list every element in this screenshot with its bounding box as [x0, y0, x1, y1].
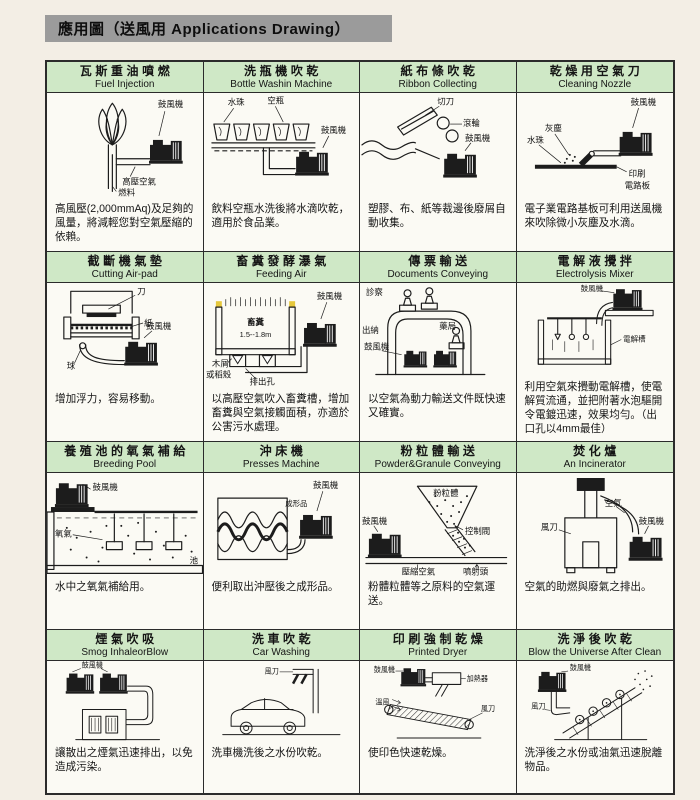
- cell-header: 紙布條吹乾 Ribbon Collecting: [360, 62, 516, 93]
- diagram-label: 壓縮空氣: [402, 567, 436, 577]
- cell-blow-after-clean: 洗淨後吹乾 Blow the Universe After Clean 鼓風機 …: [517, 630, 674, 795]
- blower-icon: [443, 154, 477, 178]
- diagram-label: 空氣: [604, 498, 621, 508]
- diagram-documents-conveying: 診察 出納 藥局 鼓風機: [360, 283, 516, 391]
- cell-description: 以空氣為動力輸送文件既快速又確實。: [360, 391, 516, 441]
- blower-icon: [149, 140, 183, 164]
- cell-description: 利用空氣來攪動電解槽，使電解質流通，並把附著水泡驅開令電鍍迅速，效果均勻。（出口…: [517, 379, 674, 441]
- diagram-electrolysis-mixer: 鼓風機 電解槽: [517, 283, 674, 378]
- cell-title-en: Bottle Washin Machine: [204, 79, 360, 91]
- cell-header: 截斷機氣墊 Cutting Air-pad: [47, 252, 203, 283]
- diagram-powder-granule: 粉粒體 控制閥 鼓風機 壓縮空氣: [360, 473, 516, 579]
- cell-bottle-washing: 洗瓶機吹乾 Bottle Washin Machine: [204, 62, 361, 252]
- cell-title-zh: 傳票輸送: [360, 255, 517, 269]
- cell-title-en: Powder&Granule Conveying: [360, 459, 516, 471]
- blower-icon: [66, 674, 94, 694]
- cell-description: 塑膠、布、紙等裁邊後廢屑自動收集。: [360, 201, 516, 251]
- diagram-cutting-airpad: 刀 紙 球 鼓風機: [47, 283, 203, 391]
- cell-breeding-pool: 養殖池的氧氣補給 Breeding Pool 鼓風機: [47, 442, 204, 630]
- cell-header: 粉粒體輸送 Powder&Granule Conveying: [360, 442, 516, 473]
- cell-description: 以高壓空氣吹入畜糞槽，增加畜糞與空氣接觸面積，亦適於公害污水處理。: [204, 391, 360, 441]
- diagram-label: 風刀: [531, 703, 545, 711]
- cell-printed-dryer: 印刷強制乾燥 Printed Dryer 鼓風機 加熱器 溫風: [360, 630, 517, 795]
- cell-title-zh: 洗瓶機吹乾: [204, 65, 361, 79]
- diagram-label: 風刀: [481, 706, 495, 714]
- diagram-label: 鼓風機: [312, 481, 338, 491]
- diagram-label: 電路板: [624, 181, 650, 191]
- blower-icon: [433, 351, 457, 368]
- diagram-label: 出納: [362, 325, 379, 335]
- blower-icon: [99, 674, 127, 694]
- diagram-ribbon-collecting: 切刀 滾輪 鼓風機: [360, 93, 516, 201]
- diagram-label: 鼓風機: [374, 665, 395, 674]
- cell-feeding-air: 畜糞發酵瀑氣 Feeding Air 畜糞: [204, 252, 361, 442]
- blower-icon: [401, 669, 427, 687]
- cell-description: 便利取出沖壓後之成形品。: [204, 579, 360, 629]
- cell-header: 煙氣吹吸 Smog InhaleorBlow: [47, 630, 203, 661]
- diagram-label: 滾輪: [463, 118, 480, 128]
- cell-description: 飲料空瓶水洗後將水滴吹乾，適用於食品業。: [204, 201, 360, 251]
- cell-title-zh: 乾燥用空氣刀: [517, 65, 674, 79]
- diagram-smog: 鼓風機: [47, 661, 203, 745]
- diagram-label: 切刀: [437, 97, 454, 107]
- cell-header: 洗瓶機吹乾 Bottle Washin Machine: [204, 62, 360, 93]
- cell-description: 電子業電路基板可利用送風機來吹除微小灰塵及水滴。: [517, 201, 674, 251]
- diagram-presses-machine: 成形品 鼓風機: [204, 473, 360, 579]
- diagram-bottle-washing: 水珠 空瓶 鼓風機: [204, 93, 360, 201]
- page-title-text: 應用圖（送風用 Applications Drawing）: [58, 18, 350, 39]
- diagram-label: 噴射頭: [463, 567, 489, 577]
- cell-title-en: Fuel Injection: [47, 79, 203, 91]
- cell-description: 高風壓(2,000mmAq)及足夠的風量，將減輕您對空氣壓縮的依賴。: [47, 201, 203, 251]
- blower-icon: [295, 152, 329, 176]
- cell-description: 讓散出之煙氣迅速排出，以免造成污染。: [47, 745, 203, 795]
- cell-title-en: Feeding Air: [204, 269, 360, 281]
- diagram-label: 木屑: [211, 359, 228, 369]
- blower-icon: [303, 323, 337, 347]
- diagram-label: 高壓空氣: [122, 177, 156, 187]
- diagram-label: 氧氣: [55, 529, 72, 539]
- diagram-label: 1.5--1.8m: [239, 330, 271, 339]
- cell-header: 印刷強制乾燥 Printed Dryer: [360, 630, 516, 661]
- cell-title-zh: 養殖池的氧氣補給: [47, 445, 204, 459]
- cell-description: 洗淨後之水份或油氣迅速脫離物品。: [517, 745, 674, 795]
- cell-description: 水中之氧氣補給用。: [47, 579, 203, 629]
- diagram-label: 池: [190, 556, 199, 566]
- cell-title-en: Presses Machine: [204, 459, 360, 471]
- cell-title-zh: 畜糞發酵瀑氣: [204, 255, 361, 269]
- cell-description: 增加浮力，容易移動。: [47, 391, 203, 441]
- diagram-label: 空瓶: [267, 96, 284, 106]
- cell-powder-granule: 粉粒體輸送 Powder&Granule Conveying 粉粒體 控制閥: [360, 442, 517, 630]
- cell-description: 使印色快速乾燥。: [360, 745, 516, 795]
- diagram-label: 或稻殼: [205, 370, 231, 380]
- cell-header: 畜糞發酵瀑氣 Feeding Air: [204, 252, 360, 283]
- diagram-label: 鼓風機: [465, 133, 491, 143]
- cell-smog-inhale-blow: 煙氣吹吸 Smog InhaleorBlow 鼓風機: [47, 630, 204, 795]
- cell-incinerator: 焚化爐 An Incinerator 空氣 鼓風機 風刀: [517, 442, 674, 630]
- diagram-label: 控制閥: [465, 526, 490, 536]
- cell-presses-machine: 沖床機 Presses Machine 成形品 鼓風機 便利取出沖壓後之成形品。: [204, 442, 361, 630]
- cell-title-zh: 瓦斯重油噴燃: [47, 65, 204, 79]
- blower-icon: [124, 342, 158, 366]
- cell-cleaning-nozzle: 乾燥用空氣刀 Cleaning Nozzle 鼓風機 灰塵 水珠: [517, 62, 674, 252]
- blower-icon: [368, 534, 402, 558]
- diagram-incinerator: 空氣 鼓風機 風刀: [517, 473, 674, 579]
- diagram-label: 藥局: [439, 321, 456, 331]
- cell-title-zh: 洗淨後吹乾: [517, 633, 674, 647]
- blower-icon: [55, 484, 89, 508]
- cell-title-en: Smog InhaleorBlow: [47, 647, 203, 659]
- diagram-label: 灰塵: [544, 123, 561, 133]
- cell-header: 傳票輸送 Documents Conveying: [360, 252, 516, 283]
- cell-header: 洗淨後吹乾 Blow the Universe After Clean: [517, 630, 674, 661]
- cell-title-en: Printed Dryer: [360, 647, 516, 659]
- blower-icon: [628, 537, 662, 561]
- diagram-car-washing: 風刀: [204, 661, 360, 745]
- cell-header: 沖床機 Presses Machine: [204, 442, 360, 473]
- cell-documents-conveying: 傳票輸送 Documents Conveying 診察 出納: [360, 252, 517, 442]
- diagram-label: 鼓風機: [146, 321, 172, 331]
- diagram-label: 鼓風機: [569, 664, 590, 673]
- diagram-label: 球: [67, 361, 76, 371]
- diagram-label: 鼓風機: [638, 516, 664, 526]
- diagram-label: 診察: [366, 288, 383, 298]
- cell-title-zh: 煙氣吹吸: [47, 633, 204, 647]
- diagram-label: 鼓風機: [364, 342, 390, 352]
- diagram-fuel-injection: 鼓風機 高壓空氣 燃料: [47, 93, 203, 201]
- cell-title-zh: 紙布條吹乾: [360, 65, 517, 79]
- cell-title-zh: 印刷強制乾燥: [360, 633, 517, 647]
- cell-header: 洗車吹乾 Car Washing: [204, 630, 360, 661]
- diagram-label: 刀: [137, 287, 145, 297]
- diagram-label: 排出孔: [249, 377, 275, 387]
- cell-description: 洗車機洗後之水份吹乾。: [204, 745, 360, 795]
- cell-title-zh: 截斷機氣墊: [47, 255, 204, 269]
- diagram-label: 電解槽: [623, 334, 646, 344]
- cell-fuel-injection: 瓦斯重油噴燃 Fuel Injection 鼓風機 高壓空氣: [47, 62, 204, 252]
- diagram-label: 加熱器: [467, 674, 488, 683]
- cell-cutting-airpad: 截斷機氣墊 Cutting Air-pad 刀 紙: [47, 252, 204, 442]
- applications-grid: 瓦斯重油噴燃 Fuel Injection 鼓風機 高壓空氣: [45, 60, 675, 795]
- cell-header: 養殖池的氧氣補給 Breeding Pool: [47, 442, 203, 473]
- cell-description: 空氣的助燃與廢氣之排出。: [517, 579, 674, 629]
- cell-title-en: An Incinerator: [517, 459, 674, 471]
- cell-title-en: Cutting Air-pad: [47, 269, 203, 281]
- cell-header: 瓦斯重油噴燃 Fuel Injection: [47, 62, 203, 93]
- diagram-label: 鼓風機: [580, 283, 603, 293]
- blower-icon: [618, 132, 652, 156]
- diagram-blow-after-clean: 鼓風機 風刀: [517, 661, 674, 745]
- cell-title-zh: 電解液攪拌: [517, 255, 674, 269]
- blower-icon: [612, 289, 642, 310]
- diagram-label: 印刷: [628, 169, 645, 179]
- diagram-label: 鼓風機: [362, 516, 388, 526]
- diagram-cleaning-nozzle: 鼓風機 灰塵 水珠 印刷 電路板: [517, 93, 674, 201]
- blower-icon: [299, 515, 333, 539]
- cell-title-en: Documents Conveying: [360, 269, 516, 281]
- blower-icon: [537, 672, 565, 692]
- blower-icon: [404, 351, 428, 368]
- cell-header: 焚化爐 An Incinerator: [517, 442, 674, 473]
- diagram-label: 成形品: [285, 498, 307, 508]
- cell-ribbon-collecting: 紙布條吹乾 Ribbon Collecting 切刀 滾輪 鼓風機 塑膠、布: [360, 62, 517, 252]
- diagram-label: 鼓風機: [82, 661, 103, 670]
- diagram-printed-dryer: 鼓風機 加熱器 溫風 風刀: [360, 661, 516, 745]
- cell-electrolysis-mixer: 電解液攪拌 Electrolysis Mixer 鼓風機: [517, 252, 674, 442]
- cell-title-en: Breeding Pool: [47, 459, 203, 471]
- cell-header: 乾燥用空氣刀 Cleaning Nozzle: [517, 62, 674, 93]
- diagram-label: 鼓風機: [158, 100, 184, 110]
- diagram-feeding-air: 畜糞 1.5--1.8m 鼓風機 木屑 或稻殼 排出孔: [204, 283, 360, 391]
- cell-title-en: Ribbon Collecting: [360, 79, 516, 91]
- diagram-label: 鼓風機: [630, 97, 656, 107]
- diagram-label: 水珠: [526, 135, 543, 145]
- diagram-breeding-pool: 鼓風機 氧氣: [47, 473, 203, 579]
- cell-title-zh: 焚化爐: [517, 445, 674, 459]
- cell-title-en: Electrolysis Mixer: [517, 269, 674, 281]
- diagram-label: 鼓風機: [93, 482, 119, 492]
- cell-title-en: Car Washing: [204, 647, 360, 659]
- diagram-label: 風刀: [264, 668, 278, 676]
- cell-title-zh: 洗車吹乾: [204, 633, 361, 647]
- diagram-label: 鼓風機: [316, 292, 342, 302]
- cell-description: 粉體粒體等之原料的空氣運送。: [360, 579, 516, 629]
- diagram-label: 粉粒體: [433, 488, 459, 498]
- cell-title-en: Blow the Universe After Clean: [517, 647, 674, 659]
- page-title: 應用圖（送風用 Applications Drawing）: [45, 15, 392, 42]
- diagram-label: 水珠: [227, 98, 244, 108]
- cell-title-en: Cleaning Nozzle: [517, 79, 674, 91]
- diagram-label: 燃料: [118, 188, 135, 198]
- cell-car-washing: 洗車吹乾 Car Washing 風刀 洗車機洗後之水份吹乾。: [204, 630, 361, 795]
- diagram-label: 鼓風機: [320, 125, 346, 135]
- cell-header: 電解液攪拌 Electrolysis Mixer: [517, 252, 674, 283]
- cell-title-zh: 粉粒體輸送: [360, 445, 517, 459]
- diagram-label: 風刀: [540, 522, 557, 532]
- cell-title-zh: 沖床機: [204, 445, 361, 459]
- diagram-label: 畜糞: [247, 317, 264, 327]
